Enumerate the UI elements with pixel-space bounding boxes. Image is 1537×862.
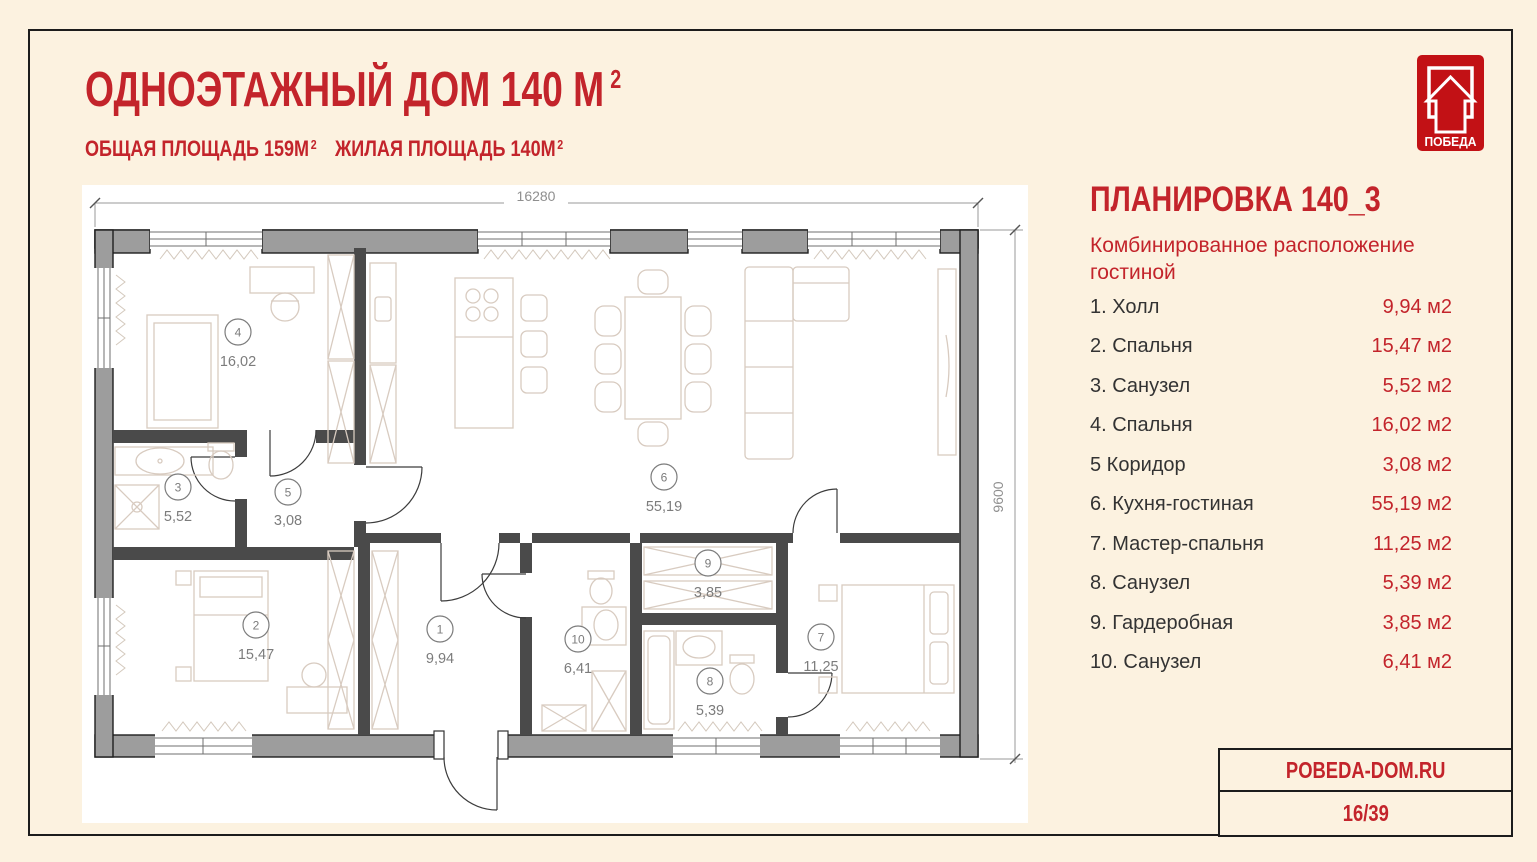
- plan-room-label-7: 711,25: [803, 624, 838, 675]
- room-list-item: 10. Санузел6,41 м2: [1090, 651, 1452, 691]
- dimension-height-value: 9600: [990, 481, 1006, 512]
- svg-text:6: 6: [661, 471, 668, 485]
- room-area-value: 15,47 м2: [1372, 335, 1452, 358]
- pobeda-logo: ПОБЕДА: [1417, 55, 1484, 151]
- svg-text:5: 5: [285, 486, 292, 500]
- page-number: 16/39: [1342, 800, 1388, 827]
- svg-text:2: 2: [253, 619, 260, 633]
- svg-text:8: 8: [707, 675, 714, 689]
- website-url: POBEDA-DOM.RU: [1286, 757, 1445, 784]
- total-area-superscript: 2: [311, 137, 317, 152]
- svg-text:4: 4: [235, 326, 242, 340]
- room-list-item: 7. Мастер-спальня11,25 м2: [1090, 533, 1452, 573]
- svg-text:55,19: 55,19: [646, 499, 682, 515]
- dimension-right: 9600: [980, 225, 1023, 764]
- house-logo-icon: ПОБЕДА: [1417, 55, 1484, 151]
- svg-text:3: 3: [175, 481, 182, 495]
- svg-text:3,08: 3,08: [274, 513, 302, 529]
- room-labels: 19,94 215,47 35,52 416,02 53,08 655,19 7…: [164, 319, 839, 719]
- windows: [94, 229, 940, 758]
- room-area-value: 9,94 м2: [1383, 296, 1452, 319]
- floorplan-poster: { "header": { "title": "ОДНОЭТАЖНЫЙ ДОМ …: [0, 0, 1537, 862]
- room-area-value: 55,19 м2: [1372, 493, 1452, 516]
- room-area-value: 16,02 м2: [1372, 414, 1452, 437]
- room-list-item: 5 Коридор3,08 м2: [1090, 454, 1452, 494]
- room-area-value: 6,41 м2: [1383, 651, 1452, 674]
- svg-text:15,47: 15,47: [238, 647, 274, 663]
- living-area-label: ЖИЛАЯ ПЛОЩАДЬ 140М: [335, 136, 556, 161]
- room-label: 8. Санузел: [1090, 572, 1190, 595]
- plan-room-label-3: 35,52: [164, 474, 192, 525]
- exterior-walls: [95, 230, 978, 757]
- room-label: 2. Спальня: [1090, 335, 1193, 358]
- room-label: 5 Коридор: [1090, 454, 1186, 477]
- room-list-item: 3. Санузел5,52 м2: [1090, 375, 1452, 415]
- room-label: 7. Мастер-спальня: [1090, 533, 1264, 556]
- room-label: 9. Гардеробная: [1090, 612, 1233, 635]
- room-list-item: 9. Гардеробная3,85 м2: [1090, 612, 1452, 652]
- room-list-item: 6. Кухня-гостиная55,19 м2: [1090, 493, 1452, 533]
- room-list-item: 2. Спальня15,47 м2: [1090, 335, 1452, 375]
- room-list-item: 8. Санузел5,39 м2: [1090, 572, 1452, 612]
- dimension-top: 16280: [90, 188, 983, 227]
- room-label: 4. Спальня: [1090, 414, 1193, 437]
- plan-room-label-1: 19,94: [426, 616, 454, 667]
- plan-room-label-6: 655,19: [646, 464, 682, 515]
- entrance-opening: [434, 731, 508, 759]
- website-box: POBEDA-DOM.RU: [1218, 748, 1513, 792]
- svg-text:1: 1: [437, 623, 444, 637]
- total-area-label: ОБЩАЯ ПЛОЩАДЬ 159М: [85, 136, 309, 161]
- room-list-item: 1. Холл9,94 м2: [1090, 296, 1452, 336]
- room-label: 3. Санузел: [1090, 375, 1190, 398]
- room-area-value: 5,39 м2: [1383, 572, 1452, 595]
- svg-text:3,85: 3,85: [694, 585, 722, 601]
- layout-subtitle: Комбинированное расположение гостиной: [1090, 232, 1440, 287]
- plan-room-label-2: 215,47: [238, 612, 274, 663]
- page-number-box: 16/39: [1218, 790, 1513, 837]
- floor-plan-drawing: 16280 9600: [82, 185, 1028, 823]
- svg-text:5,39: 5,39: [696, 703, 724, 719]
- logo-wordmark: ПОБЕДА: [1425, 134, 1478, 149]
- room-label: 6. Кухня-гостиная: [1090, 493, 1254, 516]
- layout-title: ПЛАНИРОВКА 140_3: [1090, 180, 1452, 220]
- plan-room-label-5: 53,08: [274, 479, 302, 529]
- room-list-item: 4. Спальня16,02 м2: [1090, 414, 1452, 454]
- room-label: 10. Санузел: [1090, 651, 1201, 674]
- floor-plan: 16280 9600: [82, 185, 1028, 823]
- room-area-value: 11,25 м2: [1373, 533, 1452, 556]
- living-area-superscript: 2: [557, 137, 563, 152]
- svg-text:11,25: 11,25: [803, 659, 838, 675]
- svg-text:5,52: 5,52: [164, 509, 192, 525]
- svg-text:16,02: 16,02: [220, 354, 256, 370]
- layout-panel: ПЛАНИРОВКА 140_3 Комбинированное располо…: [1090, 180, 1452, 691]
- svg-text:10: 10: [571, 633, 585, 647]
- svg-text:7: 7: [818, 631, 825, 645]
- svg-text:9: 9: [705, 557, 712, 571]
- page-title: ОДНОЭТАЖНЫЙ ДОМ 140 М2: [85, 62, 791, 118]
- svg-text:6,41: 6,41: [564, 661, 592, 677]
- title-superscript: 2: [610, 64, 621, 94]
- title-text: ОДНОЭТАЖНЫЙ ДОМ 140 М: [85, 63, 604, 117]
- dimension-width-value: 16280: [517, 188, 556, 204]
- room-area-value: 3,08 м2: [1383, 454, 1452, 477]
- room-area-value: 3,85 м2: [1383, 612, 1452, 635]
- plan-room-label-4: 416,02: [220, 319, 256, 370]
- plan-room-label-8: 85,39: [696, 668, 724, 719]
- plan-room-label-10: 106,41: [564, 626, 592, 677]
- room-area-value: 5,52 м2: [1383, 375, 1452, 398]
- room-label: 1. Холл: [1090, 296, 1159, 319]
- svg-text:9,94: 9,94: [426, 651, 454, 667]
- room-list: 1. Холл9,94 м2 2. Спальня15,47 м2 3. Сан…: [1090, 296, 1452, 691]
